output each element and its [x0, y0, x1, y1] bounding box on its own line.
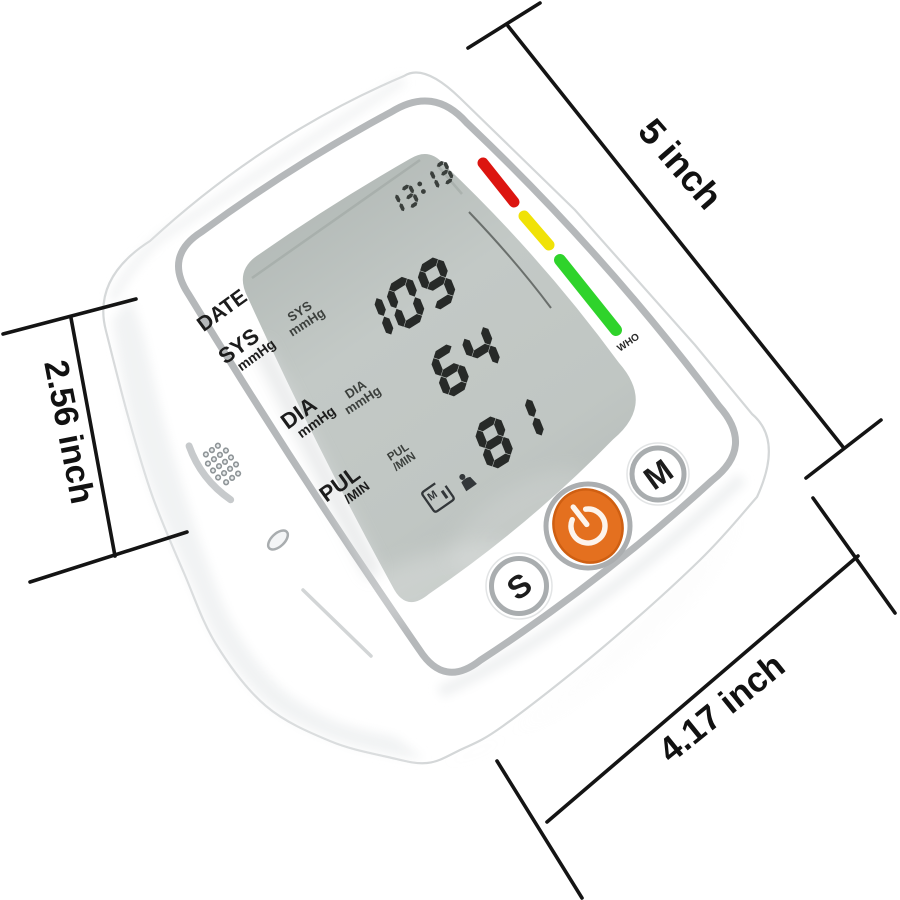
svg-text:4.17 inch: 4.17 inch	[651, 646, 792, 771]
